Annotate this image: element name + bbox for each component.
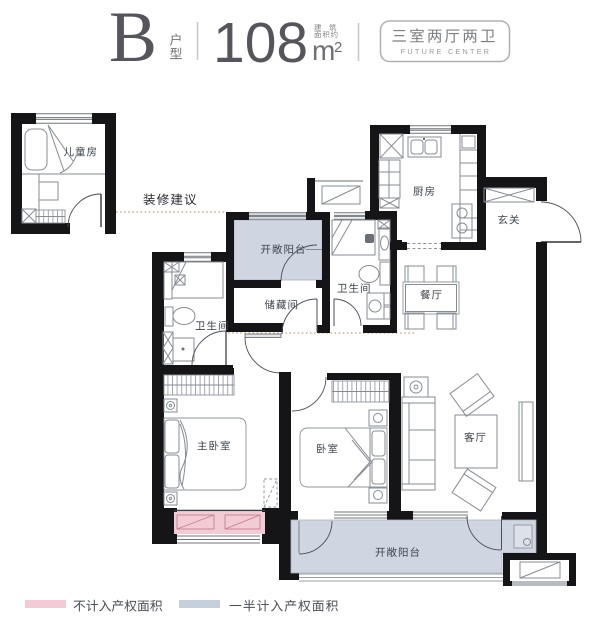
svg-text:2: 2 [334,39,342,56]
svg-text:108: 108 [213,11,308,75]
svg-text:FUTURE CENTER: FUTURE CENTER [401,47,492,56]
svg-text:B: B [109,0,157,77]
svg-text:m: m [312,35,335,66]
